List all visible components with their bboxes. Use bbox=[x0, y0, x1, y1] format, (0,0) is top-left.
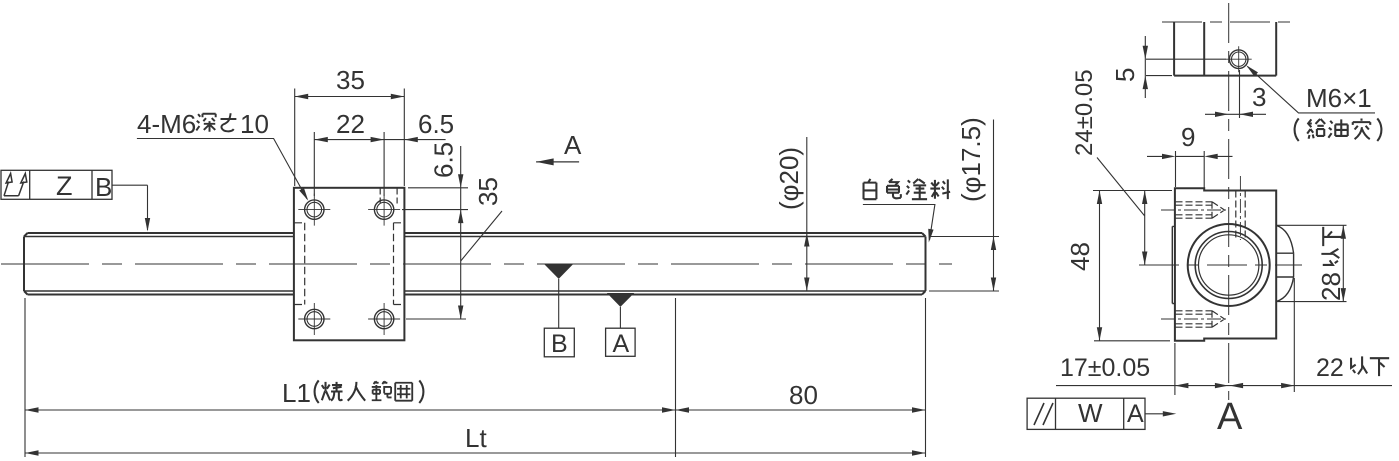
svg-text:A: A bbox=[564, 130, 582, 160]
svg-text:W: W bbox=[1078, 398, 1103, 428]
svg-text:80: 80 bbox=[789, 380, 818, 410]
svg-text:(φ20): (φ20) bbox=[774, 147, 804, 210]
svg-text:22: 22 bbox=[336, 109, 365, 139]
svg-text:24±0.05: 24±0.05 bbox=[1071, 69, 1098, 156]
svg-text:28: 28 bbox=[1316, 272, 1346, 301]
svg-text:35: 35 bbox=[473, 177, 503, 206]
svg-text:3: 3 bbox=[1252, 82, 1266, 112]
svg-text:B: B bbox=[551, 330, 568, 358]
svg-text:48: 48 bbox=[1065, 242, 1095, 271]
svg-text:22: 22 bbox=[1316, 354, 1344, 382]
svg-text:17±0.05: 17±0.05 bbox=[1060, 354, 1150, 382]
svg-text:M6×1: M6×1 bbox=[1306, 83, 1372, 113]
svg-text:(φ17.5): (φ17.5) bbox=[956, 117, 986, 202]
svg-text:5: 5 bbox=[1110, 68, 1140, 82]
svg-text:B: B bbox=[95, 172, 112, 202]
svg-text:Z: Z bbox=[56, 171, 73, 201]
svg-text:L1: L1 bbox=[282, 378, 311, 408]
svg-text:4-M6: 4-M6 bbox=[137, 109, 196, 139]
svg-text:A: A bbox=[1127, 400, 1144, 428]
svg-text:A: A bbox=[1217, 396, 1243, 438]
svg-text:9: 9 bbox=[1181, 122, 1195, 152]
svg-text:A: A bbox=[613, 330, 630, 358]
svg-text:Lt: Lt bbox=[465, 423, 487, 453]
svg-text:6.5: 6.5 bbox=[418, 109, 454, 139]
svg-text:10: 10 bbox=[240, 109, 269, 139]
svg-text:6.5: 6.5 bbox=[429, 142, 459, 178]
svg-text:35: 35 bbox=[336, 65, 365, 95]
